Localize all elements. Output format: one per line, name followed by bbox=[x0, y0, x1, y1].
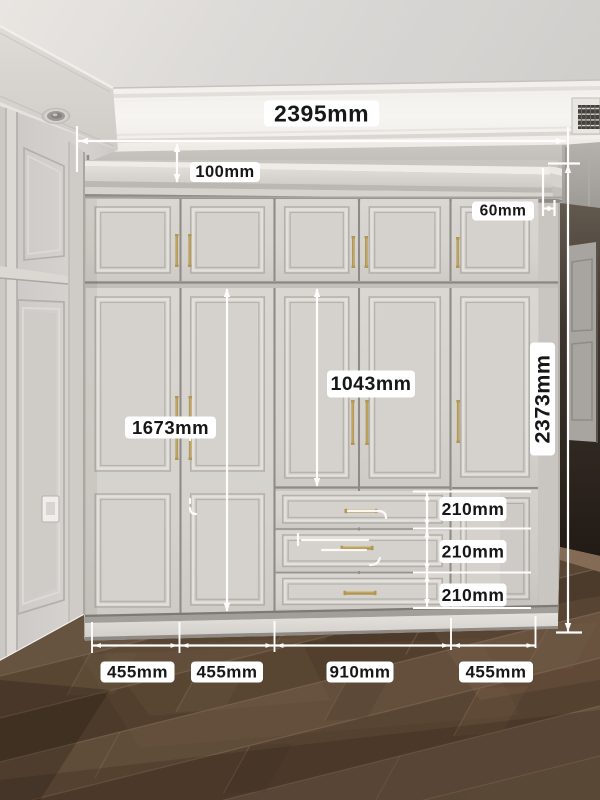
svg-text:455mm: 455mm bbox=[107, 663, 168, 682]
svg-text:455mm: 455mm bbox=[196, 663, 257, 682]
svg-text:210mm: 210mm bbox=[442, 542, 505, 562]
svg-text:210mm: 210mm bbox=[442, 585, 505, 605]
svg-text:2373mm: 2373mm bbox=[531, 354, 555, 443]
svg-text:100mm: 100mm bbox=[195, 163, 254, 181]
svg-text:2395mm: 2395mm bbox=[274, 101, 369, 127]
svg-text:1673mm: 1673mm bbox=[132, 417, 209, 438]
svg-text:1043mm: 1043mm bbox=[330, 373, 411, 395]
svg-text:60mm: 60mm bbox=[480, 203, 527, 220]
svg-text:210mm: 210mm bbox=[442, 499, 505, 519]
svg-text:455mm: 455mm bbox=[465, 663, 526, 682]
svg-text:910mm: 910mm bbox=[329, 663, 390, 682]
